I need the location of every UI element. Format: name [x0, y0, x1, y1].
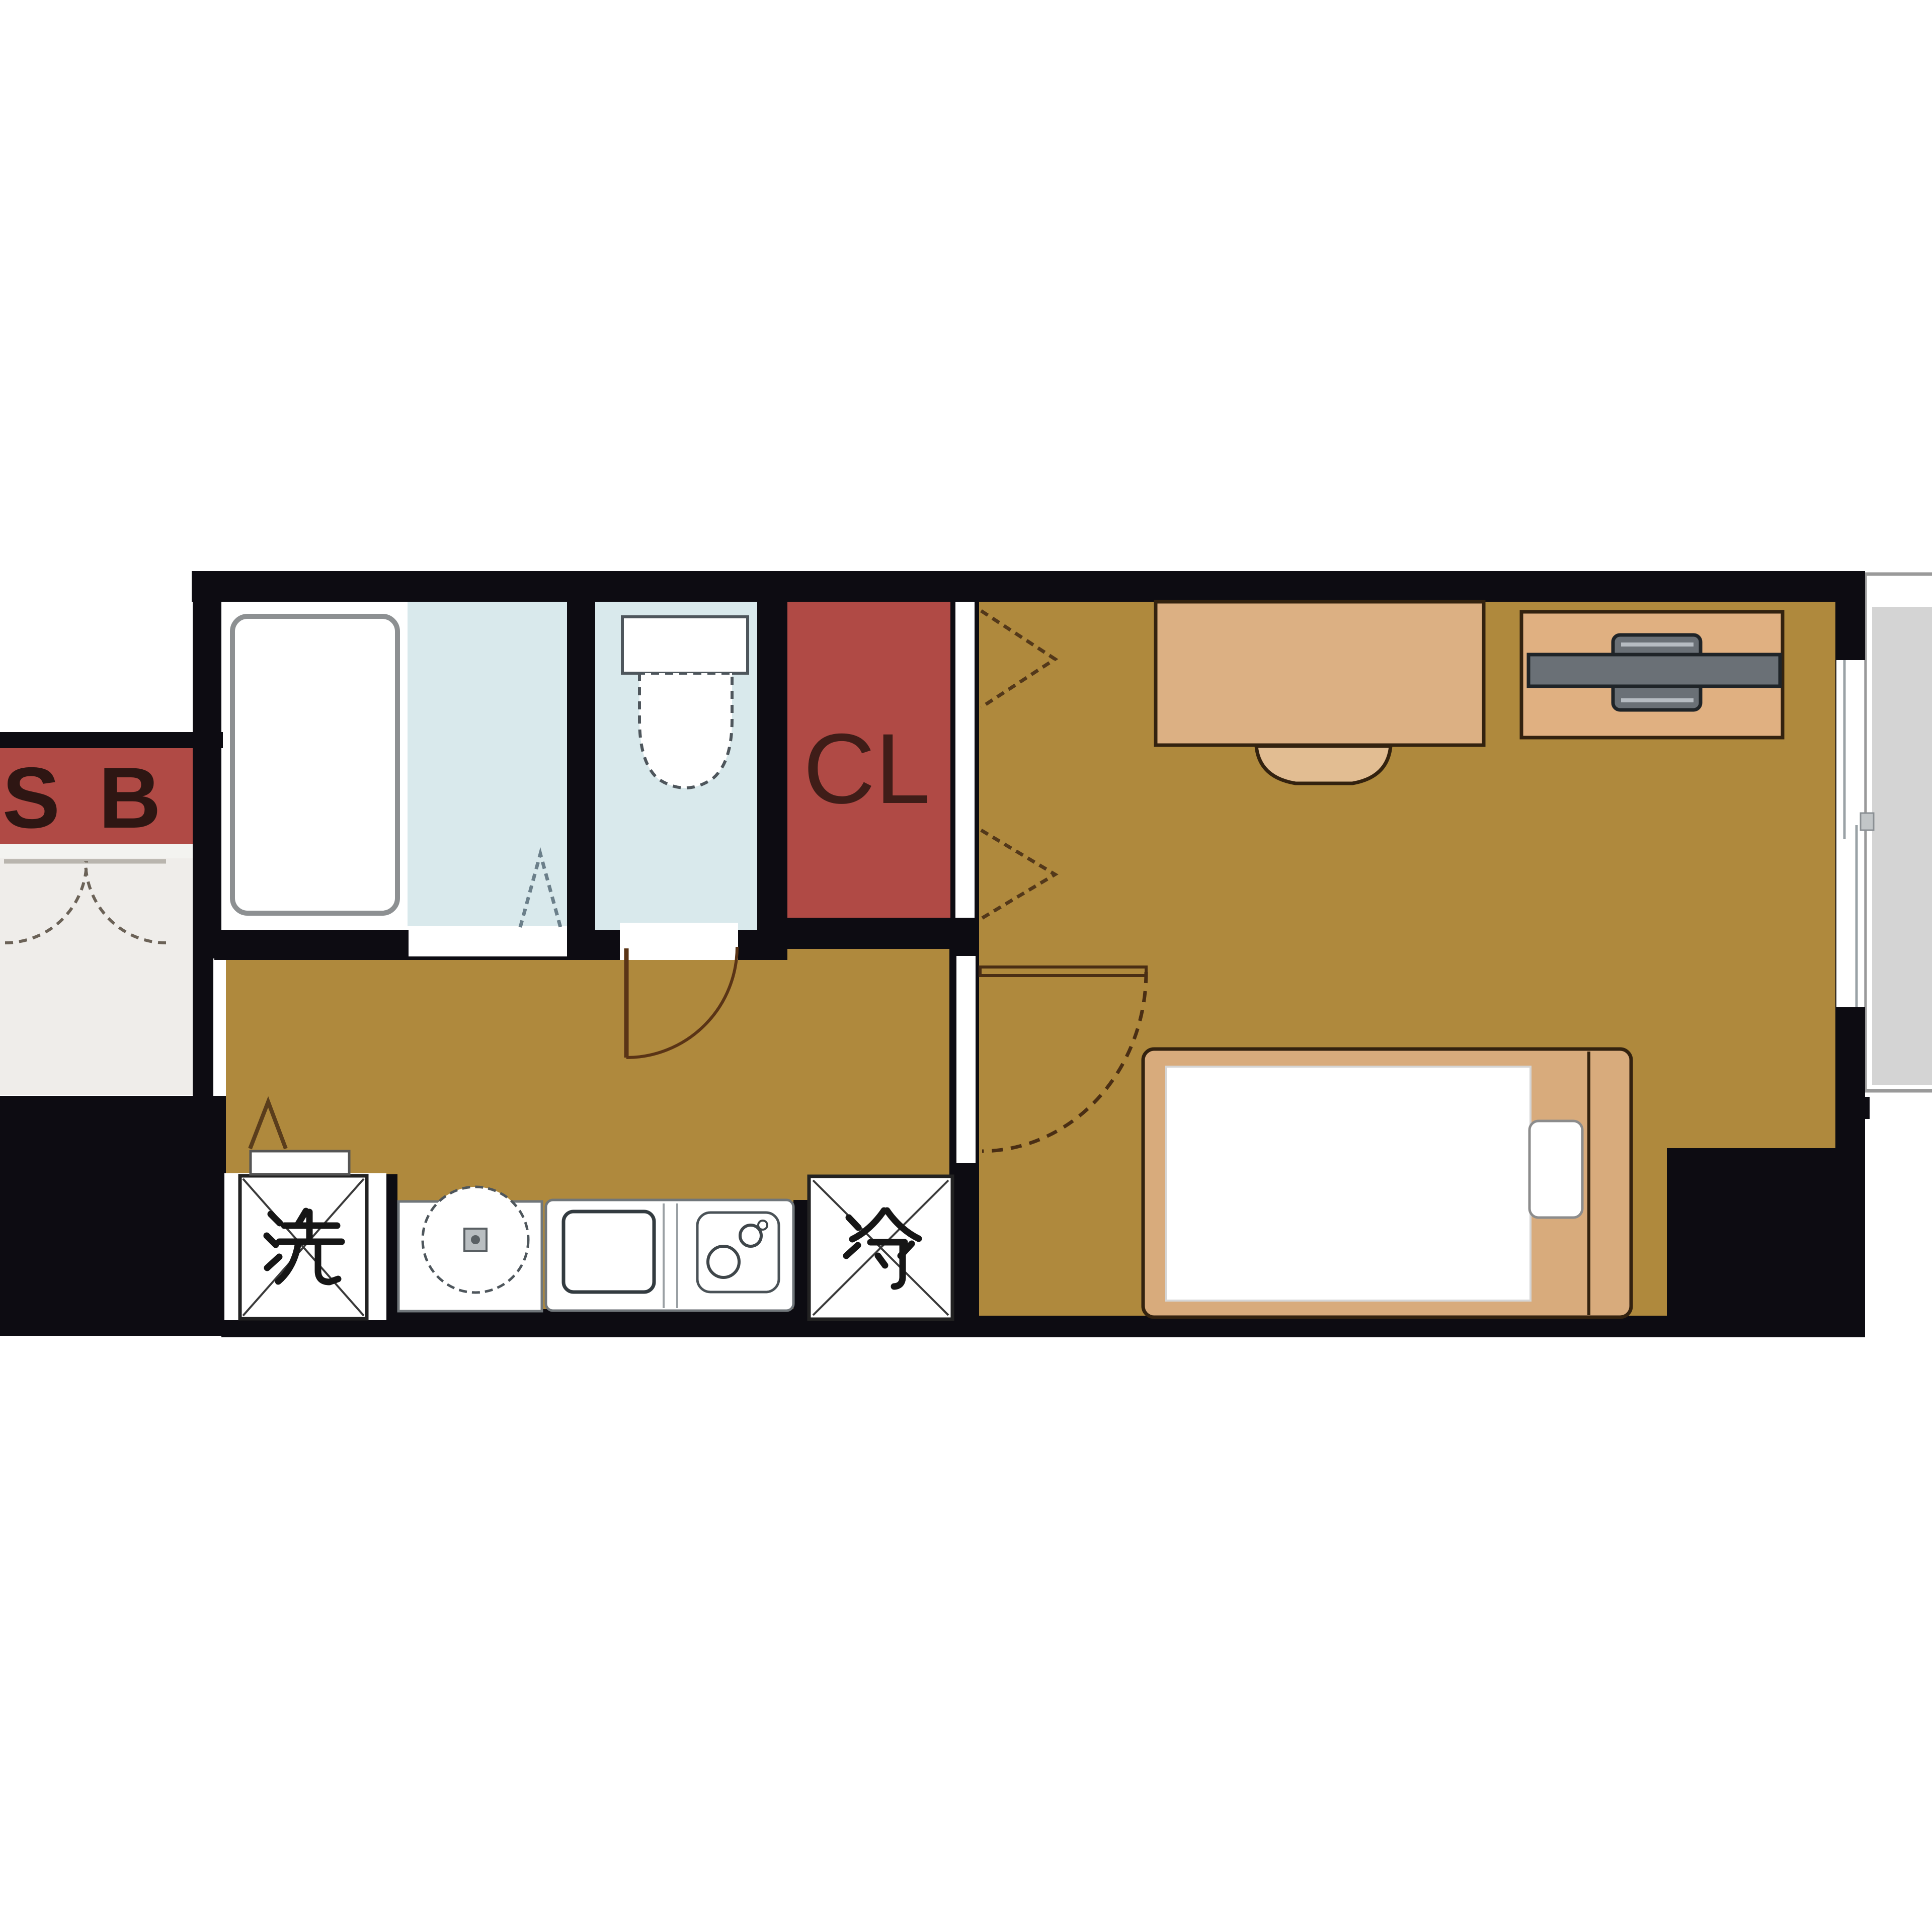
svg-text:S: S	[3, 750, 60, 846]
svg-text:CL: CL	[803, 713, 930, 824]
svg-text:B: B	[99, 750, 161, 846]
